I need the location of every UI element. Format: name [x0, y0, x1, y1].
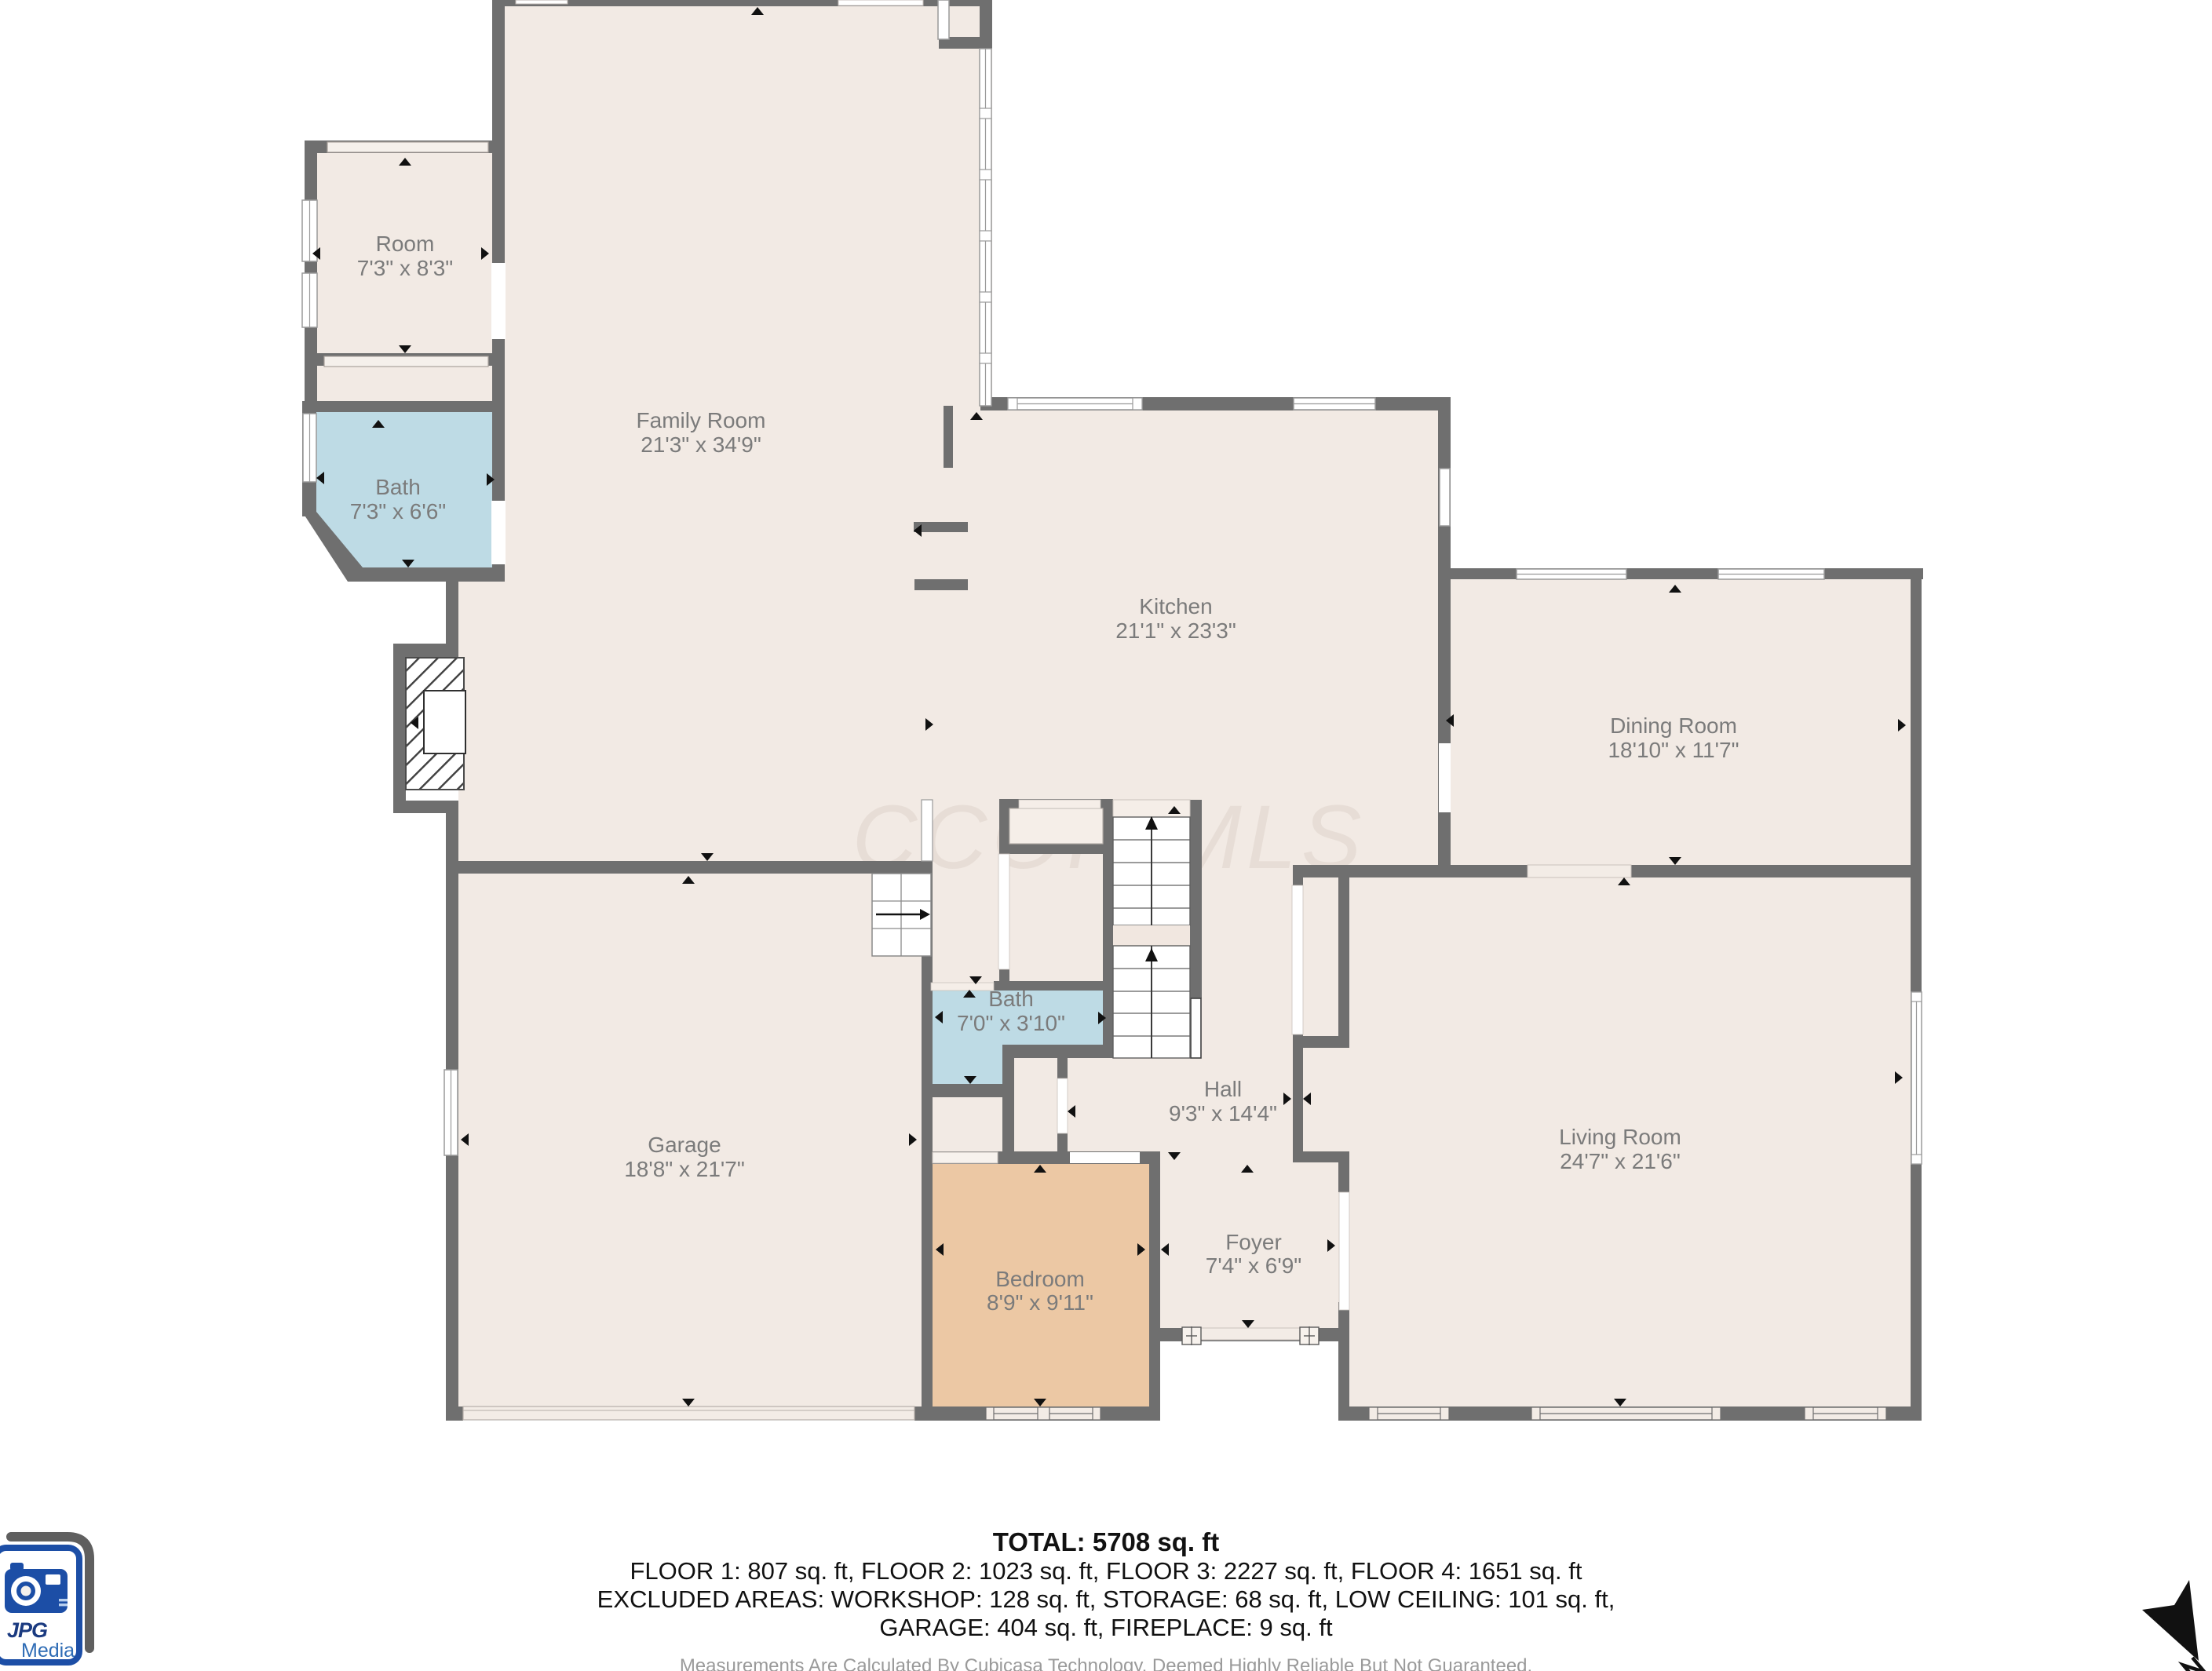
svg-text:7'0" x 3'10": 7'0" x 3'10" [957, 1011, 1065, 1035]
svg-text:18'10" x 11'7": 18'10" x 11'7" [1608, 738, 1739, 762]
svg-text:7'3" x 6'6": 7'3" x 6'6" [350, 499, 446, 524]
svg-text:Family Room: Family Room [637, 408, 766, 432]
svg-text:Dining Room: Dining Room [1610, 713, 1737, 738]
svg-text:Measurements Are Calculated By: Measurements Are Calculated By Cubicasa … [680, 1655, 1532, 1671]
svg-text:Foyer: Foyer [1225, 1230, 1282, 1254]
svg-text:24'7" x 21'6": 24'7" x 21'6" [1560, 1149, 1681, 1173]
svg-text:JPG: JPG [7, 1618, 48, 1642]
svg-text:Hall: Hall [1204, 1077, 1242, 1101]
svg-text:Room: Room [376, 232, 435, 256]
svg-text:Garage: Garage [648, 1133, 721, 1157]
svg-text:Bedroom: Bedroom [995, 1267, 1085, 1291]
svg-text:18'8" x 21'7": 18'8" x 21'7" [624, 1157, 745, 1181]
svg-text:7'4" x 6'9": 7'4" x 6'9" [1206, 1253, 1301, 1278]
svg-text:21'3" x 34'9": 21'3" x 34'9" [641, 432, 761, 457]
svg-text:9'3" x 14'4": 9'3" x 14'4" [1169, 1101, 1277, 1126]
svg-text:8'9" x 9'11": 8'9" x 9'11" [987, 1290, 1093, 1315]
svg-text:7'3" x 8'3": 7'3" x 8'3" [357, 256, 453, 280]
svg-text:Living Room: Living Room [1559, 1125, 1681, 1149]
svg-text:Bath: Bath [375, 475, 421, 499]
svg-text:Media: Media [21, 1640, 75, 1662]
svg-text:Bath: Bath [988, 987, 1034, 1011]
svg-text:FLOOR 1: 807 sq. ft, FLOOR 2:: FLOOR 1: 807 sq. ft, FLOOR 2: 1023 sq. f… [630, 1557, 1582, 1585]
svg-text:EXCLUDED AREAS: WORKSHOP: 128: EXCLUDED AREAS: WORKSHOP: 128 sq. ft, ST… [597, 1585, 1615, 1613]
svg-text:Kitchen: Kitchen [1139, 594, 1212, 618]
svg-text:GARAGE: 404 sq. ft, FIREPLACE:: GARAGE: 404 sq. ft, FIREPLACE: 9 sq. ft [879, 1614, 1333, 1641]
svg-text:TOTAL: 5708 sq. ft: TOTAL: 5708 sq. ft [993, 1527, 1220, 1556]
svg-text:21'1" x 23'3": 21'1" x 23'3" [1115, 618, 1236, 643]
